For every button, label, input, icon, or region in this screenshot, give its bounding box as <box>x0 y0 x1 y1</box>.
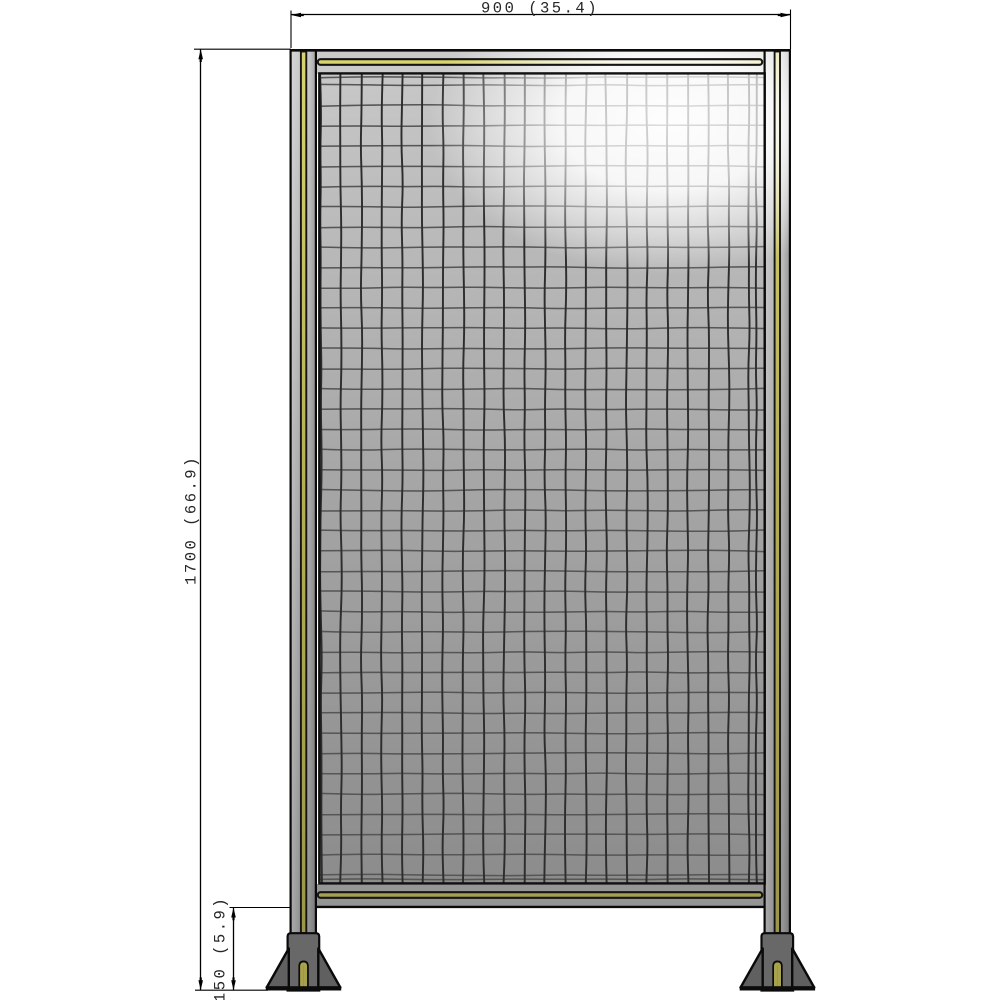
svg-text:1700 (66.9): 1700 (66.9) <box>183 455 201 585</box>
svg-text:150 (5.9): 150 (5.9) <box>212 896 230 1000</box>
svg-text:900 (35.4): 900 (35.4) <box>481 0 599 18</box>
